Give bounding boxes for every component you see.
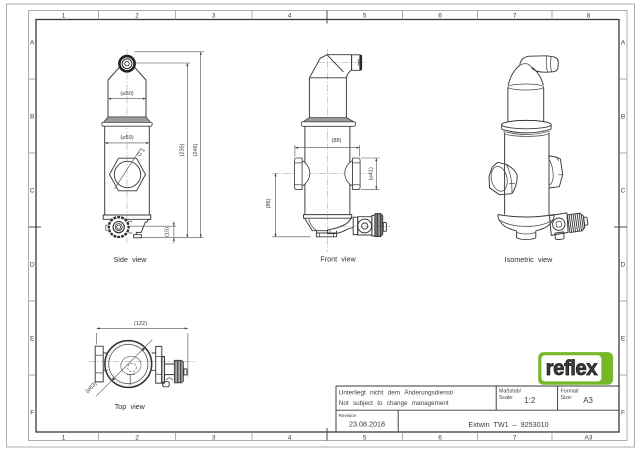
svg-text:1:2: 1:2 bbox=[524, 396, 535, 405]
svg-text:4: 4 bbox=[288, 434, 292, 441]
svg-text:reflex: reflex bbox=[546, 357, 598, 380]
svg-text:A3: A3 bbox=[583, 396, 593, 405]
svg-text:Not subject to change manageme: Not subject to change management bbox=[339, 400, 449, 407]
svg-text:(⌀59): (⌀59) bbox=[120, 135, 133, 141]
svg-text:A3: A3 bbox=[585, 434, 593, 441]
svg-text:6: 6 bbox=[438, 12, 442, 19]
svg-text:F: F bbox=[30, 410, 34, 417]
svg-text:7: 7 bbox=[513, 434, 517, 441]
svg-text:23.08.2018: 23.08.2018 bbox=[349, 420, 385, 429]
svg-text:Side view: Side view bbox=[114, 255, 148, 264]
svg-text:Top view: Top view bbox=[115, 402, 146, 411]
svg-text:4: 4 bbox=[288, 12, 292, 19]
svg-text:(88): (88) bbox=[332, 138, 342, 144]
svg-text:E: E bbox=[621, 336, 626, 343]
svg-text:Extwin TW1 – 9253010: Extwin TW1 – 9253010 bbox=[468, 420, 548, 429]
svg-text:(15): (15) bbox=[165, 227, 171, 237]
svg-text:Scale:: Scale: bbox=[499, 395, 514, 401]
svg-text:B: B bbox=[621, 114, 625, 121]
svg-text:B: B bbox=[30, 114, 34, 121]
svg-text:5: 5 bbox=[363, 12, 367, 19]
svg-text:1: 1 bbox=[62, 12, 66, 19]
svg-text:1: 1 bbox=[62, 434, 66, 441]
svg-text:5: 5 bbox=[363, 434, 367, 441]
svg-text:3: 3 bbox=[212, 434, 216, 441]
svg-text:Unterliegt nicht dem Änderungs: Unterliegt nicht dem Änderungsdienst/ bbox=[339, 389, 454, 397]
svg-text:3: 3 bbox=[212, 12, 216, 19]
svg-text:(246): (246) bbox=[193, 143, 199, 156]
svg-text:A: A bbox=[30, 40, 35, 47]
svg-text:C: C bbox=[30, 188, 35, 195]
svg-text:(⌀50): (⌀50) bbox=[120, 91, 133, 97]
svg-text:Maßstab/: Maßstab/ bbox=[499, 388, 522, 394]
svg-text:A: A bbox=[621, 40, 626, 47]
svg-text:(235): (235) bbox=[180, 143, 186, 156]
svg-text:Format/: Format/ bbox=[561, 388, 580, 394]
svg-text:2: 2 bbox=[135, 434, 139, 441]
svg-text:2: 2 bbox=[135, 12, 139, 19]
svg-text:6: 6 bbox=[438, 434, 442, 441]
svg-text:7: 7 bbox=[513, 12, 517, 19]
svg-text:(122): (122) bbox=[134, 321, 147, 327]
svg-text:Revision: Revision bbox=[339, 413, 357, 418]
svg-text:C: C bbox=[621, 188, 626, 195]
svg-text:(86): (86) bbox=[266, 198, 272, 208]
svg-text:D: D bbox=[30, 262, 35, 269]
svg-text:E: E bbox=[30, 336, 35, 343]
svg-text:8: 8 bbox=[587, 12, 591, 19]
svg-text:D: D bbox=[621, 262, 626, 269]
svg-text:Front view: Front view bbox=[320, 255, 356, 264]
svg-text:Isometric view: Isometric view bbox=[505, 255, 554, 264]
svg-text:Size:: Size: bbox=[561, 395, 573, 401]
svg-text:F: F bbox=[621, 410, 625, 417]
svg-text:(⌀41): (⌀41) bbox=[368, 167, 374, 180]
